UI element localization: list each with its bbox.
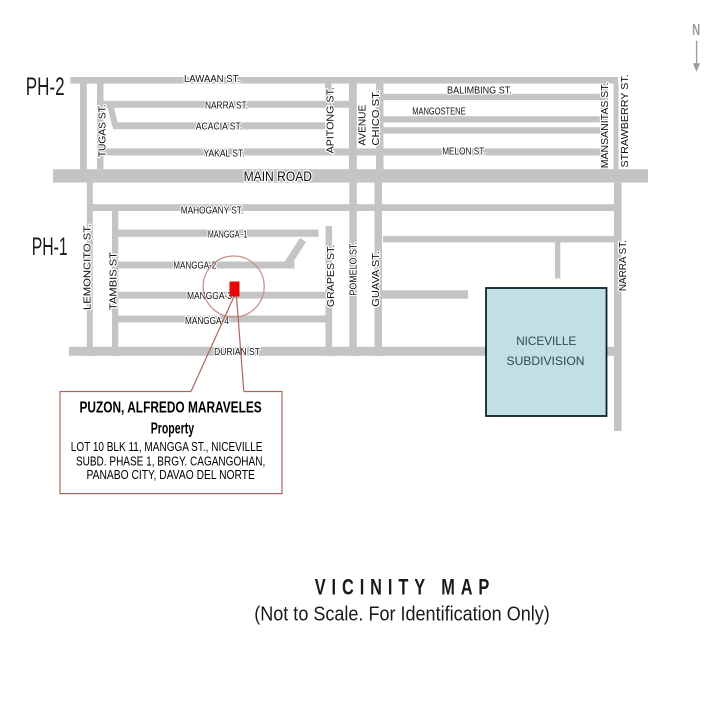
svg-text:SUBD. PHASE 1, BRGY. CAGANGOHA: SUBD. PHASE 1, BRGY. CAGANGOHAN, xyxy=(76,454,265,468)
svg-text:MANGGA-2: MANGGA-2 xyxy=(173,260,216,271)
svg-text:PH-2: PH-2 xyxy=(26,73,65,101)
svg-text:ACACIA ST.: ACACIA ST. xyxy=(196,122,243,133)
svg-text:DURIAN ST: DURIAN ST xyxy=(214,347,260,358)
svg-text:VICINITY MAP: VICINITY MAP xyxy=(315,575,496,600)
svg-text:MAHOGANY ST.: MAHOGANY ST. xyxy=(181,205,244,216)
svg-text:GUAVA ST.: GUAVA ST. xyxy=(371,251,382,307)
svg-text:MANSANITAS ST.: MANSANITAS ST. xyxy=(600,83,611,169)
svg-text:MANGOSTENE: MANGOSTENE xyxy=(412,107,466,118)
svg-text:AVENUE: AVENUE xyxy=(358,104,369,145)
svg-text:PUZON, ALFREDO MARAVELES: PUZON, ALFREDO MARAVELES xyxy=(79,400,262,417)
svg-text:PH-1: PH-1 xyxy=(32,233,68,261)
svg-text:NICEVILLE: NICEVILLE xyxy=(516,334,576,348)
svg-text:(Not to Scale. For Identificat: (Not to Scale. For Identification Only) xyxy=(254,603,550,626)
svg-text:YAKAL ST.: YAKAL ST. xyxy=(204,148,245,159)
svg-text:TAMBIS ST: TAMBIS ST xyxy=(108,252,119,310)
svg-text:GRAPES ST.: GRAPES ST. xyxy=(326,245,337,308)
svg-text:MANGGA-3: MANGGA-3 xyxy=(187,291,232,302)
svg-text:POMELO ST.: POMELO ST. xyxy=(349,242,360,295)
svg-text:NARRA ST.: NARRA ST. xyxy=(618,240,629,291)
svg-text:STRAWBERRY ST.: STRAWBERRY ST. xyxy=(620,74,631,167)
svg-text:LOT 10 BLK 11, MANGGA ST., NIC: LOT 10 BLK 11, MANGGA ST., NICEVILLE xyxy=(71,440,263,454)
svg-text:TUGAS ST.: TUGAS ST. xyxy=(97,104,108,157)
svg-text:SUBDIVISION: SUBDIVISION xyxy=(507,354,585,368)
svg-text:LAWAAN ST.: LAWAAN ST. xyxy=(184,74,240,85)
svg-text:APITONG ST.: APITONG ST. xyxy=(326,87,337,153)
svg-text:LEMONCITO ST.: LEMONCITO ST. xyxy=(82,224,93,310)
svg-text:MANGGA -1: MANGGA -1 xyxy=(208,229,248,240)
svg-text:BALIMBING ST.: BALIMBING ST. xyxy=(447,85,512,96)
svg-text:NARRA ST.: NARRA ST. xyxy=(205,100,248,111)
svg-text:MAIN ROAD: MAIN ROAD xyxy=(244,168,312,184)
svg-text:PANABO CITY, DAVAO DEL NORTE: PANABO CITY, DAVAO DEL NORTE xyxy=(87,468,255,482)
svg-text:CHICO ST.: CHICO ST. xyxy=(371,90,382,145)
svg-text:Property: Property xyxy=(151,421,194,438)
svg-text:N: N xyxy=(692,22,700,39)
svg-text:MELON ST.: MELON ST. xyxy=(442,147,485,158)
